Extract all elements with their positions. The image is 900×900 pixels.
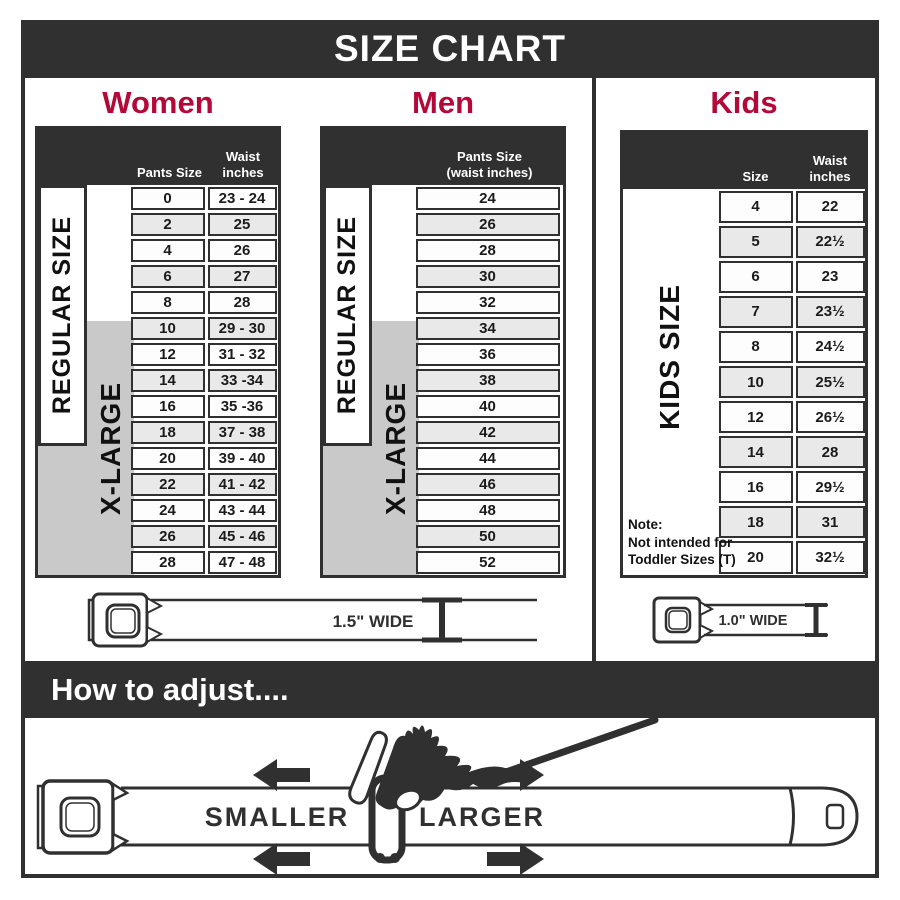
men-table: Pants Size (waist inches) REGULAR SIZE X… xyxy=(320,126,566,578)
size-cell: 23½ xyxy=(796,296,865,328)
kids-belt-width-label: 1.0" WIDE xyxy=(719,613,788,629)
women-heading: Women xyxy=(35,84,281,122)
slider-loop-left xyxy=(375,853,385,863)
size-cell: 31 xyxy=(796,506,865,538)
size-cell: 46 xyxy=(416,473,560,496)
size-cell: 25½ xyxy=(796,366,865,398)
women-col-size: Pants Size xyxy=(131,165,208,181)
size-cell: 42 xyxy=(416,421,560,444)
size-cell: 10 xyxy=(131,317,205,340)
size-cell: 14 xyxy=(131,369,205,392)
men-regular-label: REGULAR SIZE xyxy=(333,216,362,414)
size-cell: 22½ xyxy=(796,226,865,258)
size-cell: 2 xyxy=(131,213,205,236)
larger-arrow-bottom-icon xyxy=(487,843,544,874)
size-chart-page: SIZE CHART Women Men Kids Pants Size Wai… xyxy=(0,0,900,900)
adjust-heading-bar: How to adjust.... xyxy=(25,661,875,718)
size-cell: 0 xyxy=(131,187,205,210)
men-xlarge-label: X-LARGE xyxy=(380,382,412,515)
kids-col-size: Size xyxy=(717,169,794,185)
size-cell: 5 xyxy=(719,226,793,258)
adjust-buckle-tab-bottom xyxy=(113,834,127,850)
size-cell: 29 - 30 xyxy=(208,317,277,340)
size-cell: 40 xyxy=(416,395,560,418)
size-cell: 16 xyxy=(719,471,793,503)
kids-size-label: KIDS SIZE xyxy=(654,284,686,430)
size-cell: 38 xyxy=(416,369,560,392)
adjust-belt-tip xyxy=(790,788,857,845)
size-cell: 20 xyxy=(131,447,205,470)
adult-belt-graphic: 1.5" WIDE xyxy=(85,588,541,652)
size-cell: 31 - 32 xyxy=(208,343,277,366)
adjust-buckle-tab-top xyxy=(113,784,127,800)
adult-belt-width-label: 1.5" WIDE xyxy=(333,612,414,631)
size-cell: 32 xyxy=(416,291,560,314)
size-cell: 12 xyxy=(719,401,793,433)
smaller-arrow-top-icon xyxy=(253,759,310,791)
slider-loop-right xyxy=(390,853,400,863)
women-regular-box: REGULAR SIZE xyxy=(38,185,87,446)
size-cell: 22 xyxy=(796,191,865,223)
size-cell: 7 xyxy=(719,296,793,328)
size-cell: 28 xyxy=(131,551,205,574)
kids-note: Note: Not intended for Toddler Sizes (T) xyxy=(628,516,748,569)
men-table-header: Pants Size (waist inches) xyxy=(323,129,563,185)
size-cell: 28 xyxy=(796,436,865,468)
size-cell: 10 xyxy=(719,366,793,398)
women-table-header: Pants Size Waist inches xyxy=(38,129,278,185)
size-cell: 14 xyxy=(719,436,793,468)
size-cell: 33 -34 xyxy=(208,369,277,392)
size-cell: 26 xyxy=(208,239,277,262)
size-cell: 8 xyxy=(131,291,205,314)
size-cell: 37 - 38 xyxy=(208,421,277,444)
size-cell: 6 xyxy=(719,261,793,293)
adjust-diagram: SMALLER LARGER xyxy=(25,718,875,874)
men-heading: Men xyxy=(320,84,566,122)
size-cell: 27 xyxy=(208,265,277,288)
size-cell: 23 - 24 xyxy=(208,187,277,210)
kids-col-waist: Waist inches xyxy=(794,153,866,186)
kids-belt-graphic: 1.0" WIDE xyxy=(650,592,835,648)
women-xlarge-box: X-LARGE xyxy=(87,321,134,575)
men-rows: 242628303234363840424446485052 xyxy=(414,185,561,575)
size-cell: 48 xyxy=(416,499,560,522)
size-cell: 4 xyxy=(719,191,793,223)
size-cell: 24 xyxy=(416,187,560,210)
size-cell: 26 xyxy=(416,213,560,236)
men-xlarge-box: X-LARGE xyxy=(372,321,419,575)
adjust-belt-tip-slot xyxy=(827,805,843,828)
kids-size-box: KIDS SIZE xyxy=(623,189,717,525)
size-cell: 36 xyxy=(416,343,560,366)
size-cell: 26½ xyxy=(796,401,865,433)
size-cell: 26 xyxy=(131,525,205,548)
size-cell: 28 xyxy=(416,239,560,262)
size-cell: 6 xyxy=(131,265,205,288)
men-regular-box: REGULAR SIZE xyxy=(323,185,372,446)
size-cell: 4 xyxy=(131,239,205,262)
size-cell: 52 xyxy=(416,551,560,574)
size-cell: 47 - 48 xyxy=(208,551,277,574)
size-cell: 29½ xyxy=(796,471,865,503)
adjust-smaller-label: SMALLER xyxy=(205,802,350,832)
size-cell: 43 - 44 xyxy=(208,499,277,522)
size-cell: 16 xyxy=(131,395,205,418)
kids-buckle-slot-inner xyxy=(669,611,687,629)
size-cell: 35 -36 xyxy=(208,395,277,418)
size-cell: 50 xyxy=(416,525,560,548)
size-cell: 8 xyxy=(719,331,793,363)
size-cell: 24½ xyxy=(796,331,865,363)
smaller-arrow-bottom-icon xyxy=(253,843,310,874)
size-cell: 28 xyxy=(208,291,277,314)
adjust-buckle-slot-inner xyxy=(66,803,94,831)
kids-heading: Kids xyxy=(620,84,868,122)
women-rows: 023 - 242254266278281029 - 301231 - 3214… xyxy=(129,185,278,575)
kids-table: Size Waist inches KIDS SIZE Note: Not in… xyxy=(620,130,868,578)
kids-table-header: Size Waist inches xyxy=(623,133,865,189)
size-cell: 22 xyxy=(131,473,205,496)
size-cell: 18 xyxy=(131,421,205,444)
women-xlarge-label: X-LARGE xyxy=(95,382,127,515)
women-table: Pants Size Waist inches REGULAR SIZE X-L… xyxy=(35,126,281,578)
size-cell: 23 xyxy=(796,261,865,293)
size-cell: 12 xyxy=(131,343,205,366)
size-cell: 39 - 40 xyxy=(208,447,277,470)
adult-buckle-slot-inner xyxy=(111,609,135,633)
women-regular-label: REGULAR SIZE xyxy=(48,216,77,414)
size-cell: 25 xyxy=(208,213,277,236)
section-divider xyxy=(592,78,596,661)
adjust-heading: How to adjust.... xyxy=(51,672,289,707)
size-cell: 30 xyxy=(416,265,560,288)
size-cell: 34 xyxy=(416,317,560,340)
hand-icon xyxy=(350,725,535,813)
women-col-waist: Waist inches xyxy=(208,149,278,182)
men-col-header: Pants Size (waist inches) xyxy=(416,149,563,182)
adjust-larger-label: LARGER xyxy=(419,802,545,832)
size-cell: 45 - 46 xyxy=(208,525,277,548)
size-cell: 44 xyxy=(416,447,560,470)
size-cell: 41 - 42 xyxy=(208,473,277,496)
page-title: SIZE CHART xyxy=(21,20,879,78)
size-cell: 24 xyxy=(131,499,205,522)
size-cell: 32½ xyxy=(796,541,865,573)
